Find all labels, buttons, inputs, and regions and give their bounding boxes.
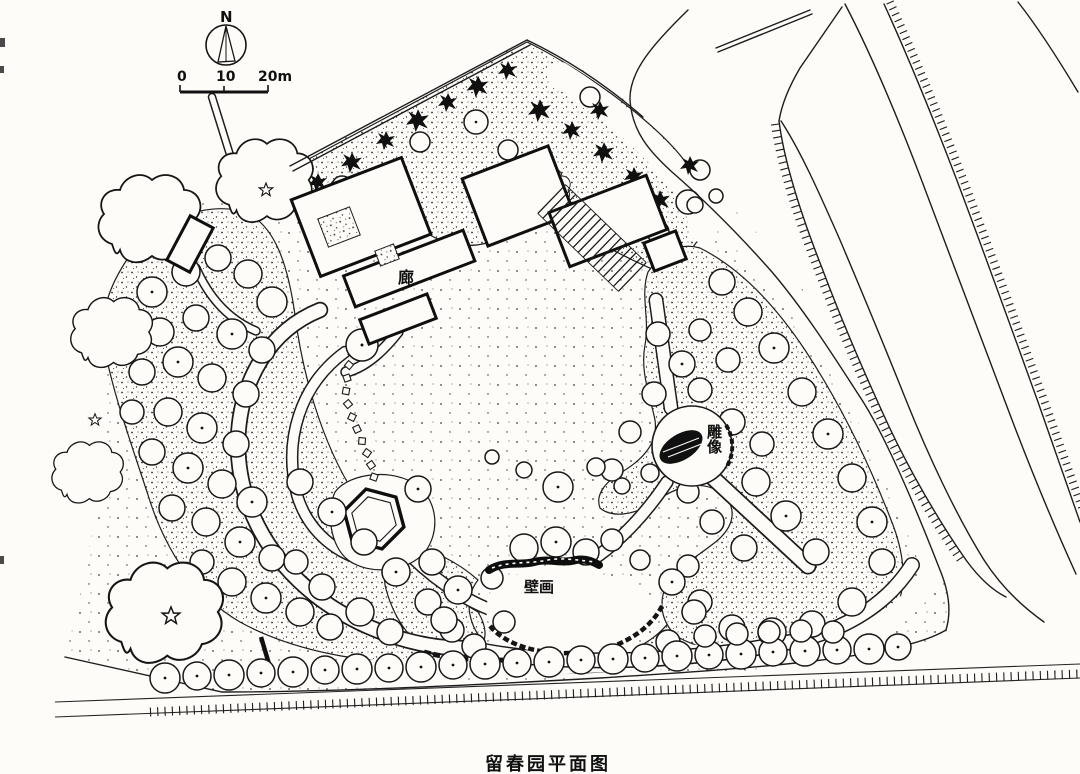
mural-label: 壁画 — [524, 578, 554, 596]
corridor-label: 廊 — [398, 268, 414, 287]
plan-title: 留春园平面图 — [485, 753, 611, 774]
garden-plan-drawing: 廊 雕像 壁画 — [0, 0, 1080, 774]
scale-tick-20m: 20m — [258, 69, 292, 85]
north-label: N — [220, 8, 233, 26]
scale-tick-10: 10 — [216, 69, 236, 85]
scale-tick-0: 0 — [177, 69, 187, 85]
scanned-garden-plan-page: 廊 雕像 壁画 — [0, 0, 1080, 774]
statue-plaza: 雕像 — [652, 406, 732, 486]
statue-label: 雕像 — [705, 423, 723, 455]
